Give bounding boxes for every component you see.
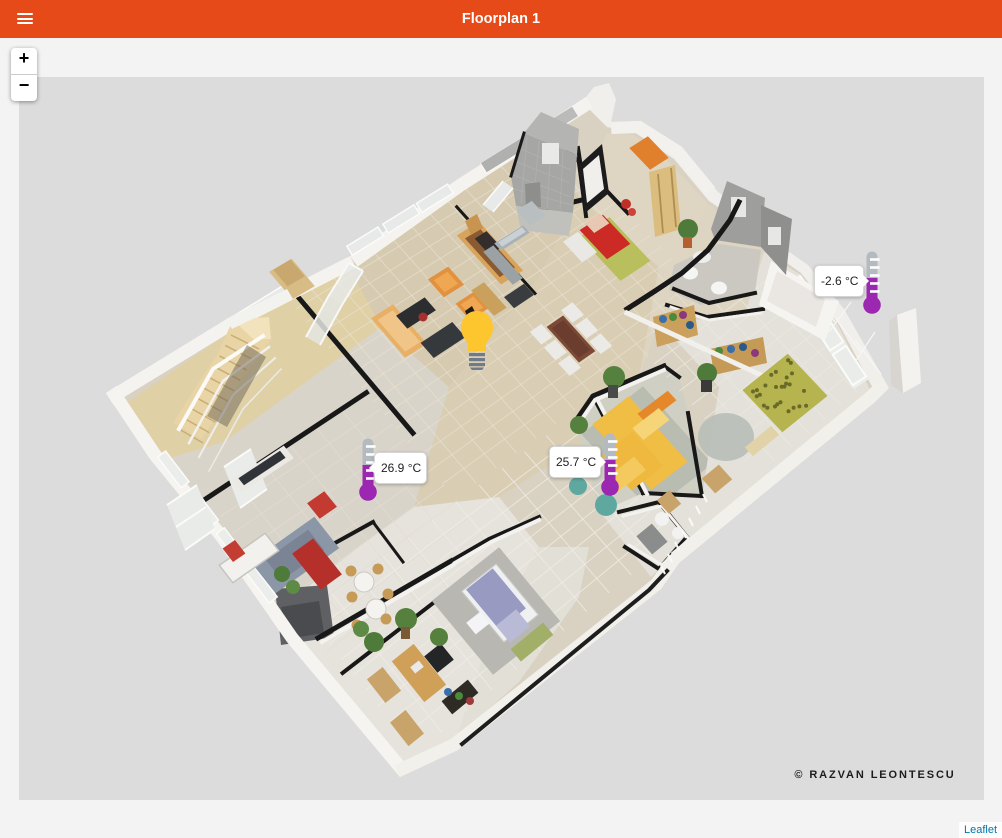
- svg-text:© RAZVAN LEONTESCU: © RAZVAN LEONTESCU: [794, 769, 955, 781]
